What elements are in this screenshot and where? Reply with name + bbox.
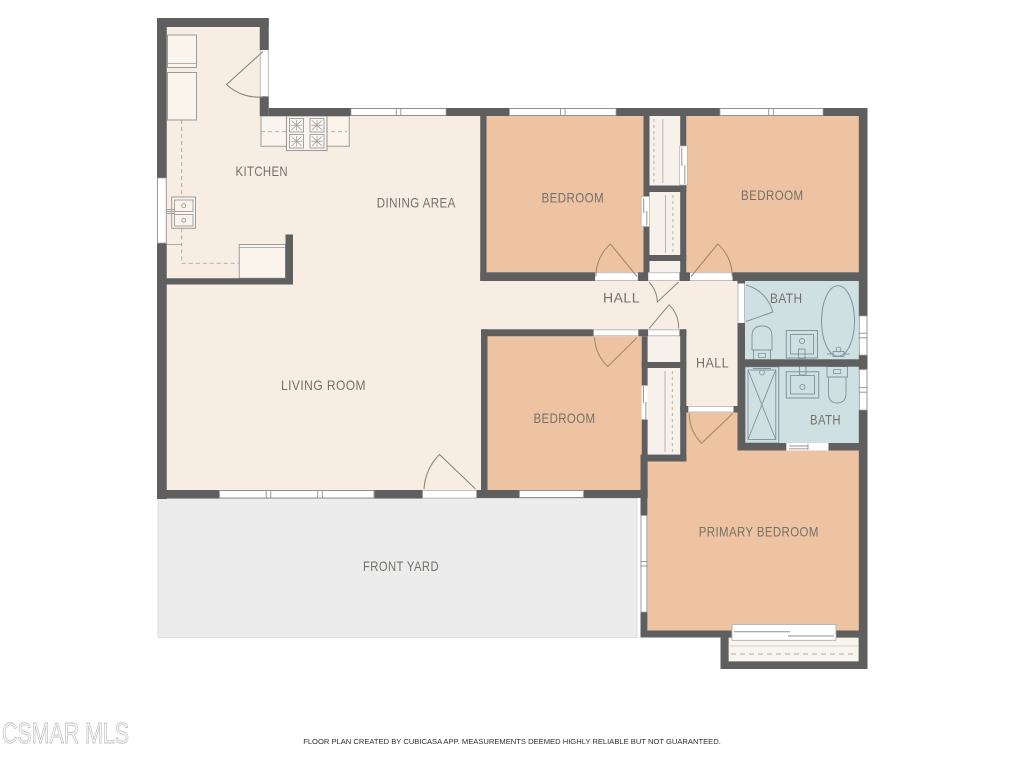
svg-text:CSMAR MLS: CSMAR MLS (2, 718, 129, 750)
svg-text:FRONT YARD: FRONT YARD (363, 558, 439, 574)
svg-text:HALL: HALL (603, 290, 640, 306)
svg-text:BEDROOM: BEDROOM (534, 410, 596, 426)
svg-text:PRIMARY BEDROOM: PRIMARY BEDROOM (699, 524, 819, 540)
svg-text:HALL: HALL (696, 355, 729, 371)
svg-text:BEDROOM: BEDROOM (542, 190, 605, 206)
svg-text:DINING AREA: DINING AREA (377, 195, 456, 211)
svg-text:KITCHEN: KITCHEN (236, 163, 289, 179)
svg-text:FLOOR PLAN CREATED BY CUBICASA: FLOOR PLAN CREATED BY CUBICASA APP. MEAS… (303, 737, 721, 746)
svg-text:BATH: BATH (810, 412, 841, 428)
svg-text:BEDROOM: BEDROOM (741, 187, 804, 203)
svg-text:LIVING ROOM: LIVING ROOM (281, 377, 366, 393)
svg-text:BATH: BATH (770, 290, 803, 306)
